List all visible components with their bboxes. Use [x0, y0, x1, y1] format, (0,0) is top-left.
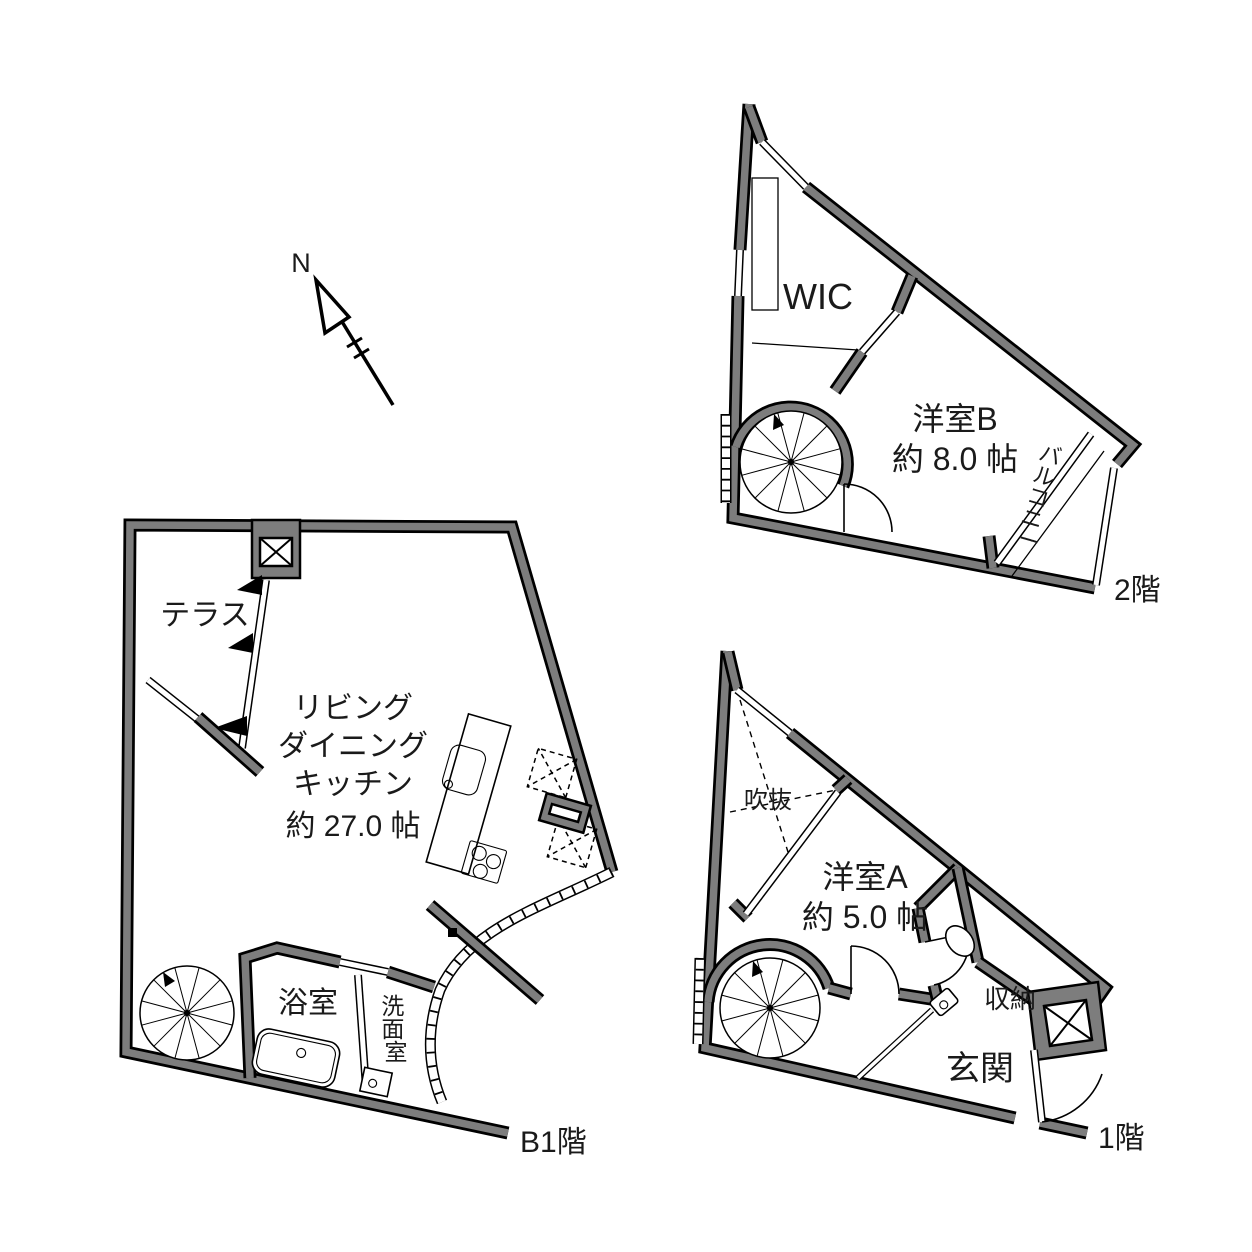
2f-windows: [738, 142, 1114, 585]
door-swing-arc: [844, 484, 892, 532]
floor-plan-2f: WIC 洋室B 約 8.0 帖 バ ル コ ニ ー 2階: [726, 104, 1161, 607]
room-b-label: 洋室B: [912, 401, 997, 437]
north-label: N: [291, 248, 311, 278]
washbasin-icon: [360, 1067, 392, 1096]
room-a-area-label: 約 5.0 帖: [802, 899, 928, 935]
kitchen-counter: [426, 714, 511, 874]
balcony-label: バ ル コ ニ ー: [1012, 440, 1070, 556]
casement-window-icon: [228, 633, 253, 653]
1f-front-door: [1034, 1050, 1102, 1122]
1f-spiral-stair: [720, 958, 820, 1058]
floor-label-1f: 1階: [1098, 1122, 1145, 1155]
wic-label: WIC: [783, 276, 853, 317]
floor-plan-b1: テラス リビング ダイニング キッチン 約 27.0 帖 浴室 洗 面 室 B1…: [126, 520, 612, 1159]
2f-stair-door: [844, 484, 892, 532]
terrace-label: テラス: [160, 599, 249, 632]
ldk-area-label: 約 27.0 帖: [285, 810, 420, 843]
entrance-label: 玄関: [946, 1050, 1014, 1088]
washroom-label: 洗 面 室: [381, 993, 410, 1065]
void-label: 吹抜: [744, 787, 792, 814]
floor-label-2f: 2階: [1114, 574, 1161, 607]
door-swing-arc: [1042, 1074, 1102, 1122]
ldk-label-2: ダイニング: [278, 730, 428, 763]
floor-plan-1f: 吹抜 洋室A 約 5.0 帖 収納 玄関 1階: [698, 651, 1145, 1155]
storage-label: 収納: [984, 984, 1036, 1014]
floor-plan-page: N: [0, 0, 1252, 1252]
2f-spiral-stair: [740, 411, 842, 513]
bath-label: 浴室: [278, 987, 338, 1020]
door-swing-arc: [851, 946, 899, 994]
1f-exterior-grate: [698, 958, 700, 1044]
casement-window-icon: [237, 575, 262, 595]
floor-plan-drawing: N: [0, 0, 1252, 1252]
room-b-area-label: 約 8.0 帖: [892, 441, 1018, 477]
ldk-label-1: リビング: [293, 692, 413, 725]
ldk-label-3: キッチン: [293, 768, 413, 801]
north-compass: N: [291, 248, 393, 405]
1f-room-a-door: [851, 946, 899, 994]
room-a-label: 洋室A: [822, 859, 908, 895]
b1-spiral-stair: [140, 966, 234, 1060]
wic-closet: [752, 178, 778, 310]
b1-pillar-duct: [252, 520, 300, 578]
floor-label-b1: B1階: [520, 1126, 587, 1159]
